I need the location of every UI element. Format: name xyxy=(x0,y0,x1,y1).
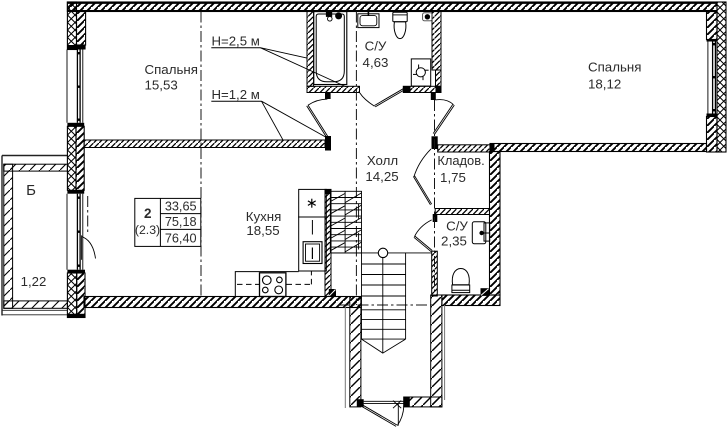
svg-text:С/У: С/У xyxy=(365,39,387,54)
svg-text:2,35: 2,35 xyxy=(441,234,467,249)
svg-text:2: 2 xyxy=(144,206,152,221)
svg-text:С/У: С/У xyxy=(446,218,468,233)
svg-text:Спальня: Спальня xyxy=(145,62,198,77)
svg-text:(2.3): (2.3) xyxy=(135,223,160,237)
svg-text:14,25: 14,25 xyxy=(365,169,398,184)
svg-text:1,22: 1,22 xyxy=(21,274,47,289)
svg-text:Н=1,2 м: Н=1,2 м xyxy=(212,87,260,102)
svg-text:Б: Б xyxy=(26,182,36,199)
svg-text:Спальня: Спальня xyxy=(588,59,641,74)
svg-text:1,75: 1,75 xyxy=(440,170,466,185)
svg-text:18,55: 18,55 xyxy=(246,223,279,238)
svg-text:Холл: Холл xyxy=(367,153,398,168)
svg-text:4,63: 4,63 xyxy=(363,55,389,70)
svg-text:18,12: 18,12 xyxy=(588,76,621,91)
svg-text:Н=2,5 м: Н=2,5 м xyxy=(212,34,260,49)
svg-text:76,40: 76,40 xyxy=(165,231,197,245)
svg-text:75,18: 75,18 xyxy=(165,215,197,229)
svg-text:15,53: 15,53 xyxy=(145,77,178,92)
svg-text:Кладов.: Кладов. xyxy=(437,153,484,168)
svg-text:Кухня: Кухня xyxy=(246,209,282,224)
svg-text:33,65: 33,65 xyxy=(165,199,197,213)
